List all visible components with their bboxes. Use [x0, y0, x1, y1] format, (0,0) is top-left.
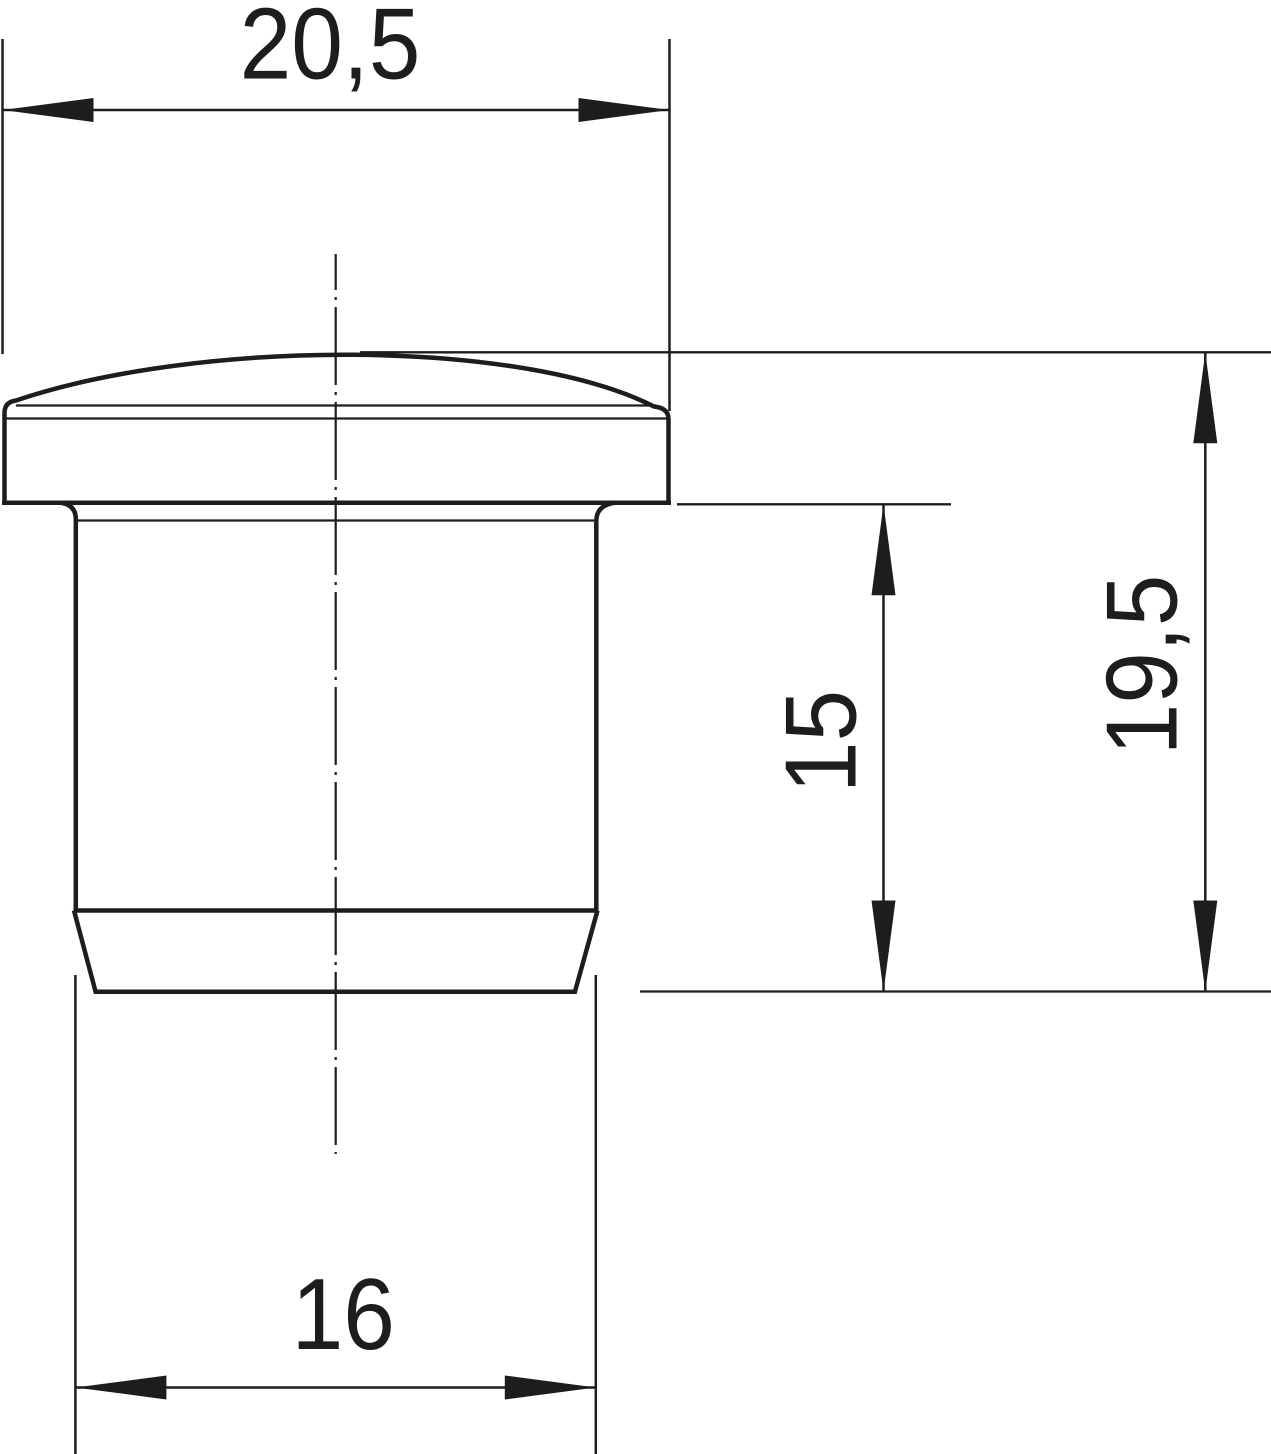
svg-text:16: 16	[292, 1257, 395, 1370]
svg-text:20,5: 20,5	[240, 0, 421, 101]
svg-text:19,5: 19,5	[1085, 575, 1198, 756]
svg-text:15: 15	[764, 690, 877, 793]
